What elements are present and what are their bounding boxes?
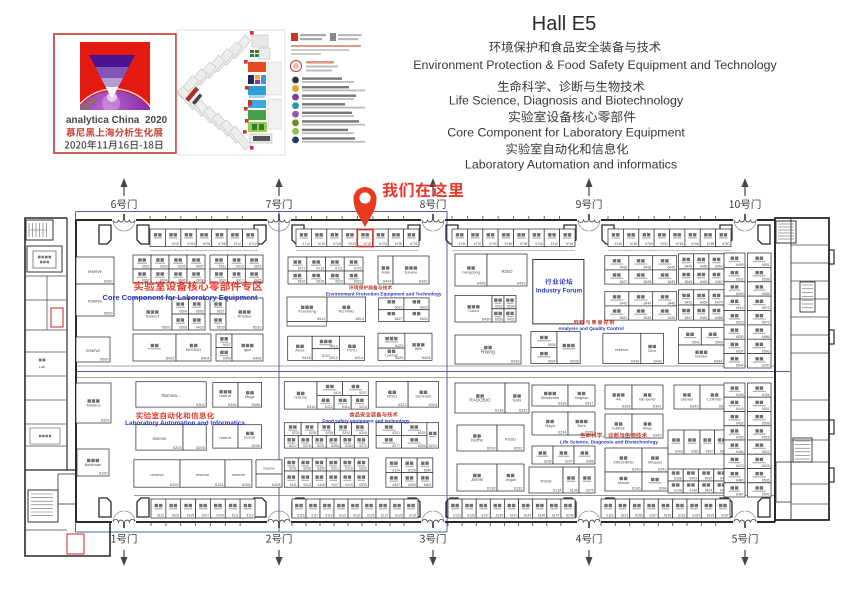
svg-text:6306: 6306: [228, 403, 236, 407]
svg-text:6300: 6300: [101, 419, 109, 423]
svg-text:6445: 6445: [736, 407, 744, 411]
svg-text:6544: 6544: [714, 359, 722, 363]
svg-text:6454: 6454: [700, 301, 708, 305]
svg-text:6242: 6242: [342, 431, 350, 435]
svg-text:6291: 6291: [289, 467, 297, 471]
svg-text:RISO: RISO: [501, 269, 513, 274]
svg-text:6117: 6117: [311, 514, 318, 518]
svg-text:6545: 6545: [685, 280, 693, 284]
svg-text:MOONG: MOONG: [186, 347, 202, 352]
svg-text:6410: 6410: [705, 477, 713, 481]
svg-text:6141: 6141: [510, 514, 518, 518]
svg-text:6221: 6221: [317, 444, 325, 448]
svg-text:6600: 6600: [100, 358, 108, 362]
svg-text:6277: 6277: [392, 444, 400, 448]
svg-text:Summen: Summen: [415, 394, 431, 399]
svg-text:6310: 6310: [307, 405, 315, 409]
svg-text:6442: 6442: [620, 302, 628, 306]
svg-text:6412: 6412: [325, 405, 333, 409]
svg-text:6236: 6236: [544, 460, 552, 464]
svg-text:RSSD: RSSD: [540, 479, 551, 484]
svg-text:6730: 6730: [459, 242, 467, 246]
svg-text:Food safety equipment and tech: Food safety equipment and technology: [322, 418, 410, 423]
svg-text:6506: 6506: [196, 310, 204, 314]
svg-text:6321: 6321: [392, 431, 400, 435]
svg-text:6537: 6537: [736, 349, 744, 353]
svg-text:6621: 6621: [395, 305, 403, 309]
svg-text:6124: 6124: [392, 468, 400, 472]
svg-text:6502: 6502: [736, 277, 744, 281]
svg-text:6424: 6424: [705, 489, 713, 493]
svg-text:6439: 6439: [631, 359, 639, 363]
svg-text:6148: 6148: [689, 489, 697, 493]
svg-text:Minteux: Minteux: [86, 402, 100, 407]
svg-text:6361: 6361: [424, 483, 432, 487]
svg-text:6513: 6513: [236, 265, 244, 269]
svg-text:6368: 6368: [586, 460, 594, 464]
svg-text:Jiemei: Jiemei: [471, 477, 483, 482]
svg-text:Jingah: Jingah: [505, 478, 516, 482]
svg-text:6230: 6230: [487, 447, 495, 451]
svg-text:6620: 6620: [335, 280, 343, 284]
svg-text:6153: 6153: [621, 514, 629, 518]
svg-text:6616: 6616: [298, 280, 306, 284]
svg-text:6534: 6534: [548, 359, 556, 363]
svg-text:Laboratory Automation and Info: Laboratory Automation and Informatics: [125, 420, 245, 427]
svg-text:reserve: reserve: [196, 472, 210, 477]
svg-text:6746: 6746: [615, 242, 623, 246]
svg-text:RUYING: RUYING: [339, 309, 355, 314]
svg-text:6719: 6719: [316, 267, 324, 271]
svg-text:Hall E5: Hall E5: [532, 13, 596, 35]
svg-text:6121: 6121: [339, 514, 347, 518]
svg-text:6754: 6754: [676, 242, 684, 246]
svg-text:6432: 6432: [507, 318, 515, 322]
svg-text:6508: 6508: [179, 326, 187, 330]
svg-text:6423: 6423: [395, 344, 403, 348]
svg-text:6439: 6439: [668, 280, 676, 284]
svg-text:6716: 6716: [318, 242, 326, 246]
svg-text:Rhodes: Rhodes: [238, 313, 252, 318]
svg-text:RISO: RISO: [387, 394, 397, 399]
svg-text:6708: 6708: [218, 242, 226, 246]
svg-text:6143: 6143: [524, 514, 532, 518]
svg-text:6717: 6717: [298, 267, 306, 271]
svg-text:6400: 6400: [104, 280, 112, 284]
svg-text:6228: 6228: [309, 431, 317, 435]
svg-text:6704: 6704: [187, 242, 195, 246]
svg-text:6305: 6305: [317, 467, 325, 471]
svg-text:Igux: Igux: [244, 347, 252, 352]
svg-text:Analysis and Quality Control: Analysis and Quality Control: [558, 326, 624, 332]
svg-text:6515: 6515: [254, 265, 262, 269]
svg-text:Monad: Monad: [618, 481, 629, 485]
svg-text:RADOBIO: RADOBIO: [469, 398, 491, 403]
svg-text:Esuino: Esuino: [405, 269, 418, 274]
svg-text:6203: 6203: [173, 446, 181, 450]
svg-text:6109: 6109: [216, 514, 224, 518]
svg-text:6448: 6448: [685, 265, 693, 269]
svg-text:6473: 6473: [736, 464, 744, 468]
svg-text:6453: 6453: [715, 265, 723, 269]
svg-text:6347: 6347: [392, 483, 400, 487]
svg-text:6256: 6256: [331, 444, 339, 448]
svg-text:Life Science, Diagnosis and Bi: Life Science, Diagnosis and Biotechnolog…: [560, 440, 658, 446]
svg-text:6105: 6105: [187, 514, 195, 518]
svg-text:6249: 6249: [359, 431, 367, 435]
svg-text:6322: 6322: [398, 403, 406, 407]
svg-text:6529: 6529: [217, 326, 225, 330]
svg-text:Environment Protection Equipme: Environment Protection Equipment and Tec…: [326, 291, 442, 296]
svg-text:6726: 6726: [395, 242, 403, 246]
svg-text:6572: 6572: [762, 306, 770, 310]
svg-text:6312: 6312: [331, 467, 339, 471]
svg-text:6529: 6529: [762, 464, 770, 468]
svg-text:6133: 6133: [453, 514, 461, 518]
svg-text:6106: 6106: [632, 487, 640, 491]
svg-text:Illumina...: Illumina...: [161, 393, 180, 398]
svg-text:Membrane: Membrane: [541, 396, 559, 400]
svg-text:6534: 6534: [507, 304, 515, 308]
svg-text:6308: 6308: [252, 403, 260, 407]
svg-text:6103: 6103: [172, 514, 180, 518]
svg-text:6734: 6734: [489, 242, 497, 246]
svg-text:Lab: Lab: [39, 364, 46, 369]
svg-text:6551: 6551: [762, 263, 770, 267]
svg-text:6123: 6123: [353, 514, 361, 518]
svg-text:6543: 6543: [644, 316, 652, 320]
svg-text:Kezhe: Kezhe: [471, 437, 484, 442]
svg-text:6504: 6504: [179, 310, 187, 314]
svg-text:6752: 6752: [661, 242, 669, 246]
svg-text:6403: 6403: [689, 477, 697, 481]
svg-text:Soifa: Soifa: [513, 398, 523, 402]
svg-text:6536: 6536: [570, 359, 578, 363]
svg-text:6440: 6440: [668, 266, 676, 270]
svg-text:6748: 6748: [630, 242, 638, 246]
svg-text:6744: 6744: [566, 242, 574, 246]
svg-text:6452: 6452: [685, 301, 693, 305]
svg-text:reserve: reserve: [219, 436, 231, 440]
svg-text:6136: 6136: [570, 489, 578, 493]
svg-text:WIK: WIK: [415, 346, 423, 351]
svg-text:6424: 6424: [383, 280, 391, 284]
svg-text:6510: 6510: [253, 326, 261, 330]
svg-text:6446: 6446: [668, 316, 676, 320]
svg-text:6127: 6127: [381, 514, 389, 518]
svg-text:Industry Forum: Industry Forum: [536, 288, 583, 295]
svg-text:6167: 6167: [721, 514, 729, 518]
svg-text:2020: 2020: [145, 115, 168, 126]
svg-text:6467: 6467: [715, 280, 723, 284]
svg-text:6459: 6459: [736, 436, 744, 440]
svg-text:6382: 6382: [691, 450, 699, 454]
svg-text:6532: 6532: [495, 304, 503, 308]
svg-text:6205: 6205: [196, 446, 204, 450]
svg-text:6446: 6446: [668, 302, 676, 306]
svg-text:Beckman: Beckman: [85, 462, 102, 467]
svg-text:6159: 6159: [664, 514, 672, 518]
svg-text:Grinder: Grinder: [695, 355, 708, 359]
svg-text:Xoucheng: Xoucheng: [298, 309, 316, 314]
svg-text:6511: 6511: [219, 265, 226, 269]
svg-text:6430: 6430: [482, 318, 490, 322]
svg-text:6131: 6131: [409, 514, 417, 518]
svg-text:6512: 6512: [317, 317, 325, 321]
svg-text:6343: 6343: [690, 405, 698, 409]
svg-text:6325: 6325: [418, 431, 426, 435]
svg-text:6129: 6129: [395, 514, 403, 518]
svg-text:6438: 6438: [644, 266, 652, 270]
svg-text:6516: 6516: [736, 306, 744, 310]
svg-text:reserve: reserve: [152, 436, 167, 441]
svg-text:6738: 6738: [520, 242, 528, 246]
svg-text:6157: 6157: [649, 514, 657, 518]
svg-text:reserve: reserve: [150, 472, 164, 477]
svg-text:PuYu: PuYu: [347, 348, 357, 353]
svg-text:Naya: Naya: [545, 423, 555, 428]
svg-text:6536: 6536: [495, 318, 503, 322]
svg-text:6442: 6442: [654, 359, 662, 363]
svg-text:6102: 6102: [170, 483, 178, 487]
svg-text:6436: 6436: [620, 266, 628, 270]
svg-text:6407: 6407: [223, 343, 231, 347]
svg-text:Anjia: Anjia: [382, 270, 390, 274]
svg-text:6505: 6505: [178, 265, 186, 269]
svg-text:6723: 6723: [354, 267, 362, 271]
svg-text:6101: 6101: [157, 514, 165, 518]
svg-text:6111: 6111: [290, 483, 297, 487]
svg-text:6237: 6237: [565, 460, 573, 464]
svg-text:6426: 6426: [419, 280, 427, 284]
svg-text:analytica China: analytica China: [66, 115, 140, 126]
svg-text:6537: 6537: [620, 280, 628, 284]
svg-text:6100: 6100: [99, 472, 107, 476]
svg-text:6151: 6151: [606, 514, 614, 518]
svg-text:6426: 6426: [422, 356, 430, 360]
svg-text:6760: 6760: [722, 242, 730, 246]
svg-text:Rising: Rising: [481, 349, 495, 355]
svg-text:6722: 6722: [364, 242, 372, 246]
svg-text:6221: 6221: [292, 431, 300, 435]
svg-text:6610: 6610: [219, 279, 227, 283]
svg-text:6408: 6408: [253, 357, 261, 361]
svg-text:6460: 6460: [700, 280, 708, 284]
svg-text:6404: 6404: [201, 357, 209, 361]
svg-text:6234: 6234: [558, 431, 566, 435]
svg-text:6480: 6480: [736, 478, 744, 482]
svg-text:6410: 6410: [334, 391, 342, 395]
svg-text:6354: 6354: [408, 483, 416, 487]
svg-text:6339: 6339: [622, 405, 630, 409]
svg-text:6702: 6702: [172, 242, 180, 246]
svg-text:reserve: reserve: [294, 396, 307, 400]
svg-text:6107: 6107: [202, 514, 210, 518]
svg-text:reserve: reserve: [232, 472, 246, 477]
svg-text:6119: 6119: [325, 514, 332, 518]
svg-text:6466: 6466: [736, 450, 744, 454]
svg-text:6507: 6507: [196, 265, 204, 269]
svg-text:6627: 6627: [395, 317, 403, 321]
svg-text:Burkert: Burkert: [146, 313, 160, 318]
svg-text:6450: 6450: [700, 265, 708, 269]
svg-text:6593: 6593: [762, 349, 770, 353]
svg-text:Anoe: Anoe: [295, 348, 305, 353]
svg-text:6206: 6206: [252, 444, 260, 448]
svg-text:6207: 6207: [359, 391, 367, 395]
svg-text:6438: 6438: [736, 393, 744, 397]
svg-text:reserve: reserve: [263, 466, 274, 470]
svg-text:6340: 6340: [424, 468, 432, 472]
svg-text:6217: 6217: [289, 444, 297, 448]
svg-text:6718: 6718: [333, 242, 341, 246]
svg-text:6430: 6430: [511, 360, 519, 364]
svg-text:4A: 4A: [616, 397, 621, 401]
svg-text:6724: 6724: [379, 242, 387, 246]
svg-text:6130: 6130: [487, 487, 495, 491]
svg-text:Fulltime: Fulltime: [612, 426, 625, 430]
svg-text:6523: 6523: [736, 321, 744, 325]
svg-text:6758: 6758: [707, 242, 715, 246]
svg-text:Coled: Coled: [468, 308, 478, 313]
svg-text:Life Science, Diagnosis and Bi: Life Science, Diagnosis and Biotechnolog…: [449, 94, 684, 108]
svg-text:6494: 6494: [762, 393, 770, 397]
svg-text:6235: 6235: [326, 431, 334, 435]
svg-text:6736: 6736: [505, 242, 513, 246]
svg-text:6104: 6104: [215, 483, 223, 487]
svg-text:Core Component for Laboratory: Core Component for Laboratory Equipment: [447, 126, 685, 140]
svg-text:6115: 6115: [297, 514, 304, 518]
svg-text:6425: 6425: [395, 356, 403, 360]
svg-text:6756: 6756: [691, 242, 699, 246]
svg-text:6622: 6622: [354, 280, 362, 284]
svg-text:6530: 6530: [736, 335, 744, 339]
svg-text:reserve: reserve: [88, 269, 103, 274]
svg-text:6284: 6284: [418, 444, 426, 448]
svg-text:6502: 6502: [162, 326, 170, 330]
svg-text:6547: 6547: [685, 316, 693, 320]
svg-text:6326: 6326: [359, 467, 367, 471]
svg-text:6214: 6214: [359, 405, 367, 409]
svg-text:6558: 6558: [762, 277, 770, 281]
svg-text:6161: 6161: [678, 514, 686, 518]
svg-text:LZRSSD: LZRSSD: [707, 397, 722, 401]
svg-text:6481: 6481: [700, 316, 708, 320]
svg-text:6742: 6742: [551, 242, 559, 246]
svg-text:6509: 6509: [736, 292, 744, 296]
svg-text:reserve: reserve: [219, 394, 231, 398]
svg-text:Laboratory Automation and info: Laboratory Automation and informatics: [465, 158, 677, 172]
svg-text:6541: 6541: [620, 316, 628, 320]
svg-text:6332: 6332: [519, 409, 527, 413]
svg-text:6712: 6712: [249, 242, 257, 246]
svg-text:6720: 6720: [349, 242, 357, 246]
svg-text:6508: 6508: [762, 421, 770, 425]
svg-text:reserve: reserve: [86, 348, 101, 353]
svg-text:6501: 6501: [762, 407, 770, 411]
svg-text:6347: 6347: [705, 450, 713, 454]
svg-text:6135: 6135: [467, 514, 475, 518]
svg-text:Liferiver: Liferiver: [681, 397, 695, 401]
svg-text:Tan's: Tan's: [577, 424, 586, 428]
svg-text:6452: 6452: [736, 421, 744, 425]
svg-text:6710: 6710: [234, 242, 242, 246]
svg-text:6487: 6487: [736, 493, 744, 497]
svg-text:6224: 6224: [429, 444, 437, 448]
svg-text:Core Component for Laboratory: Core Component for Laboratory Equipment: [102, 293, 258, 302]
svg-text:6740: 6740: [535, 242, 543, 246]
svg-text:Xinghan: Xinghan: [575, 396, 589, 400]
svg-text:6565: 6565: [762, 292, 770, 296]
svg-text:6232: 6232: [514, 447, 522, 451]
svg-text:6409: 6409: [223, 357, 231, 361]
svg-text:6402: 6402: [166, 357, 174, 361]
svg-text:6200: 6200: [762, 364, 770, 368]
svg-text:6125: 6125: [367, 514, 375, 518]
svg-text:6336: 6336: [558, 402, 566, 406]
svg-text:6375: 6375: [586, 489, 594, 493]
svg-text:6623: 6623: [420, 305, 428, 309]
svg-text:6113: 6113: [246, 514, 253, 518]
svg-text:6413: 6413: [329, 344, 337, 348]
svg-text:6412: 6412: [329, 356, 337, 360]
svg-text:6750: 6750: [645, 242, 653, 246]
svg-text:6155: 6155: [635, 514, 643, 518]
svg-text:6165: 6165: [707, 514, 715, 518]
svg-text:6503: 6503: [160, 265, 168, 269]
svg-text:6706: 6706: [203, 242, 211, 246]
svg-text:6535: 6535: [548, 343, 556, 347]
svg-text:6536: 6536: [762, 478, 770, 482]
svg-text:6579: 6579: [762, 321, 770, 325]
svg-text:ZHECHENG: ZHECHENG: [613, 460, 633, 464]
svg-text:6138: 6138: [495, 409, 503, 413]
svg-text:6728: 6728: [410, 242, 418, 246]
svg-text:6396: 6396: [674, 477, 682, 481]
svg-text:6618: 6618: [316, 280, 324, 284]
svg-text:Mega: Mega: [245, 395, 255, 399]
svg-text:6298: 6298: [303, 467, 311, 471]
svg-text:6501: 6501: [142, 265, 150, 269]
svg-text:6240: 6240: [632, 468, 640, 472]
svg-text:6126: 6126: [408, 468, 416, 472]
svg-text:6624: 6624: [420, 317, 428, 321]
svg-text:6414: 6414: [355, 356, 363, 360]
svg-text:6113: 6113: [304, 483, 311, 487]
svg-text:6137: 6137: [481, 514, 489, 518]
svg-text:6106: 6106: [242, 483, 250, 487]
svg-text:reserve: reserve: [615, 347, 629, 352]
svg-text:reserve: reserve: [88, 299, 103, 304]
svg-text:Cline: Cline: [648, 349, 657, 353]
svg-text:6146: 6146: [674, 489, 682, 493]
svg-text:6432: 6432: [517, 282, 525, 286]
svg-text:6241: 6241: [658, 468, 666, 472]
svg-text:6337: 6337: [585, 402, 593, 406]
svg-text:6115: 6115: [318, 483, 325, 487]
svg-text:6436: 6436: [477, 282, 485, 286]
svg-text:6111: 6111: [232, 514, 239, 518]
svg-text:6108: 6108: [272, 483, 280, 487]
svg-text:6134: 6134: [553, 489, 561, 493]
svg-text:6302: 6302: [196, 403, 204, 407]
svg-text:6527: 6527: [217, 310, 225, 314]
svg-text:6495: 6495: [736, 263, 744, 267]
svg-text:6145: 6145: [538, 514, 546, 518]
svg-text:6270: 6270: [359, 444, 367, 448]
svg-text:6414: 6414: [342, 405, 350, 409]
svg-text:6543: 6543: [762, 493, 770, 497]
